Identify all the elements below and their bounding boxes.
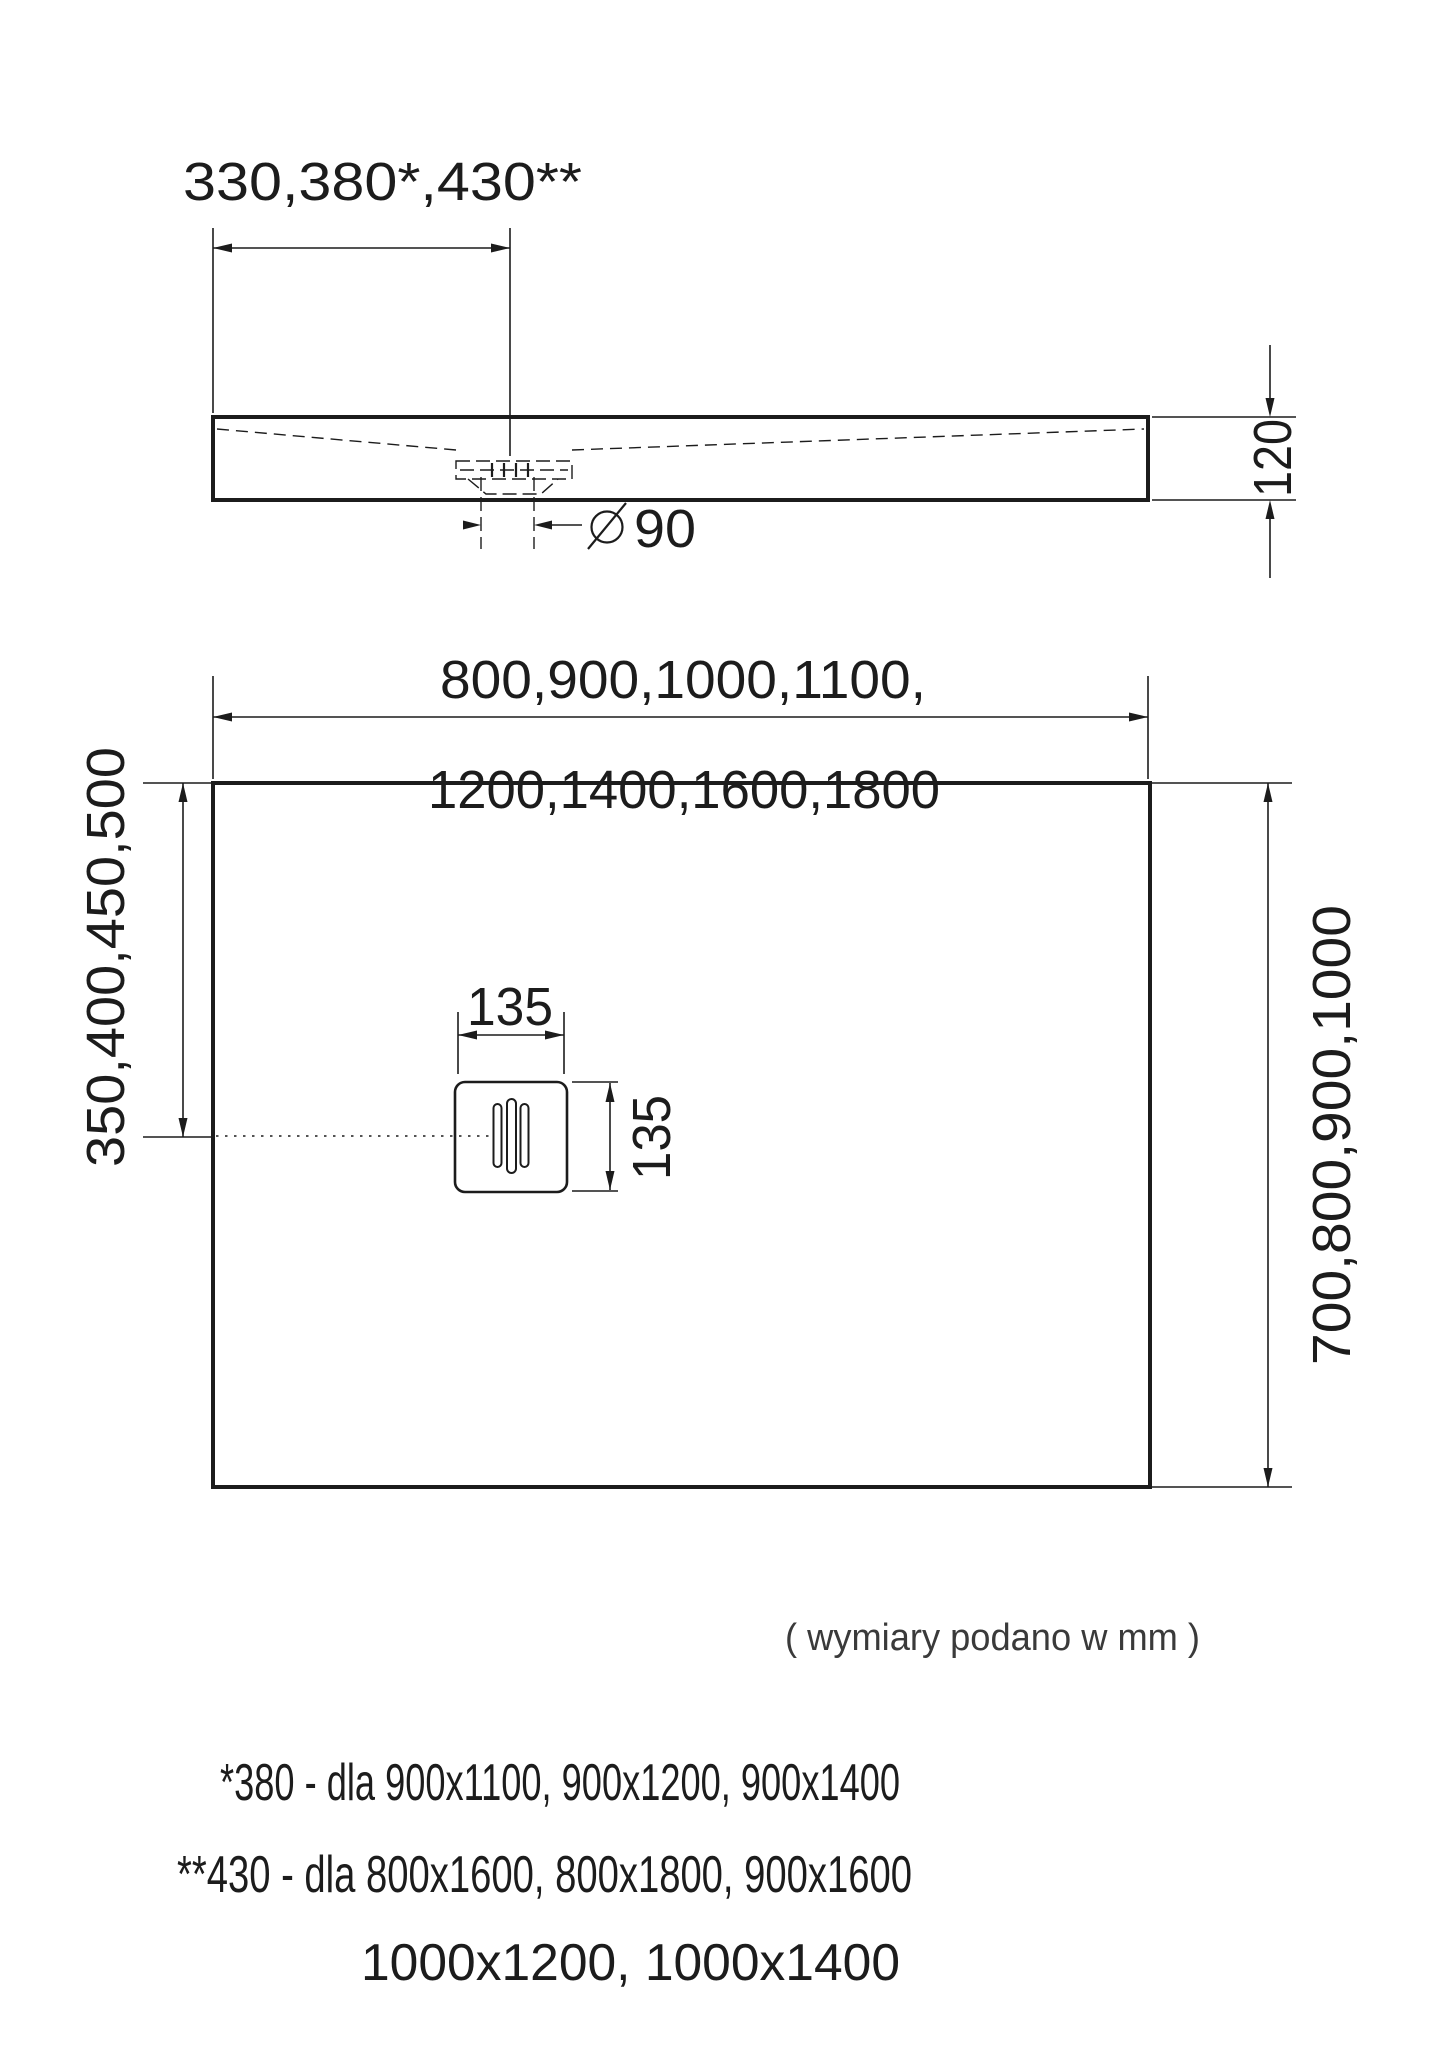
side-view-floor-slope-left bbox=[217, 429, 456, 450]
drain-diameter-label: 90 bbox=[634, 499, 696, 559]
plan-left-dimension: 350,400,450,500 bbox=[76, 747, 211, 1167]
side-view-tray-outline bbox=[213, 417, 1148, 500]
drain-slot-center bbox=[507, 1099, 516, 1173]
drain-height-label: 135 bbox=[622, 1095, 682, 1180]
arrow-right bbox=[491, 244, 510, 253]
units-note: ( wymiary podano w mm ) bbox=[785, 1617, 1200, 1659]
arrow-down bbox=[1266, 398, 1275, 417]
plan-width-dim-line2: 1200,1400,1600,1800 bbox=[428, 760, 940, 820]
plan-width-dim-line1: 800,900,1000,1100, bbox=[440, 650, 926, 710]
arrow-right bbox=[1129, 713, 1148, 722]
plan-right-dimension: 700,800,900,1000 bbox=[1152, 783, 1362, 1487]
notes: ( wymiary podano w mm ) *380 - dla 900x1… bbox=[177, 1617, 1200, 1992]
arrow-down bbox=[179, 1118, 188, 1137]
arrow-down bbox=[1264, 1468, 1273, 1487]
side-view-floor-slope-right bbox=[572, 429, 1144, 450]
plan-width-dimension: 800,900,1000,1100, 1200,1400,1600,1800 bbox=[213, 650, 1148, 820]
drain-diameter-dimension: 90 bbox=[463, 499, 696, 559]
footnote-line1: *380 - dla 900x1100, 900x1200, 900x1400 bbox=[220, 1754, 900, 1812]
technical-drawing-page: 330,380*,430** 120 90 800,900,100 bbox=[0, 0, 1448, 2047]
side-width-dim-label: 330,380*,430** bbox=[183, 152, 582, 212]
drain-slot-left bbox=[494, 1104, 502, 1167]
drain-height-dimension: 135 bbox=[572, 1082, 682, 1191]
plan-right-dim-label: 700,800,900,1000 bbox=[1302, 905, 1362, 1365]
arrow-down bbox=[606, 1171, 615, 1190]
drawing-svg: 330,380*,430** 120 90 800,900,100 bbox=[0, 0, 1448, 2047]
drain-width-label: 135 bbox=[467, 977, 553, 1037]
arrow-left bbox=[213, 244, 232, 253]
arrow-up bbox=[1266, 500, 1275, 519]
footnote-line2: **430 - dla 800x1600, 800x1800, 900x1600 bbox=[177, 1846, 912, 1904]
side-width-dimension: 330,380*,430** bbox=[183, 152, 582, 456]
drain-width-dimension: 135 bbox=[458, 977, 564, 1074]
arrow-up bbox=[179, 783, 188, 802]
arrow-left-tip bbox=[534, 521, 552, 530]
arrow-right-tip bbox=[463, 521, 481, 530]
footnote-line3: 1000x1200, 1000x1400 bbox=[361, 1934, 900, 1992]
drain-slot-right bbox=[521, 1104, 529, 1167]
arrow-left bbox=[213, 713, 232, 722]
arrow-up bbox=[606, 1083, 615, 1102]
plan-left-dim-label: 350,400,450,500 bbox=[76, 747, 136, 1167]
side-height-dimension: 120 bbox=[1152, 345, 1303, 578]
arrow-up bbox=[1264, 783, 1273, 802]
side-height-dim-label: 120 bbox=[1243, 419, 1303, 497]
